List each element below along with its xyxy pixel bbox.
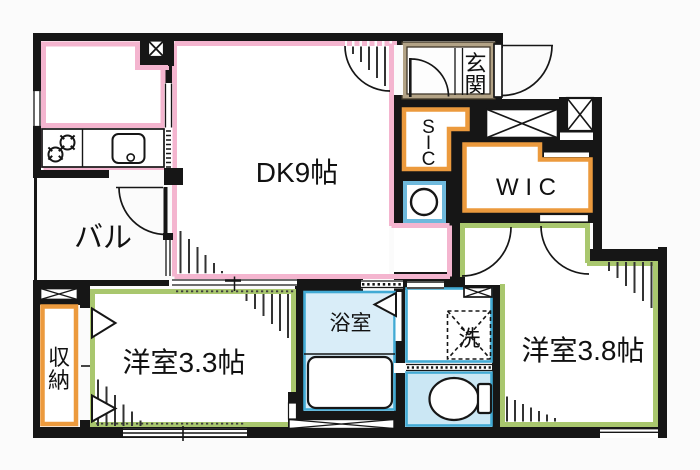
- svg-text:洋室3.8帖: 洋室3.8帖: [522, 335, 645, 366]
- svg-text:DK9帖: DK9帖: [256, 157, 338, 188]
- svg-text:バル: バル: [74, 222, 132, 254]
- svg-text:洗: 洗: [458, 326, 480, 351]
- svg-text:C: C: [422, 149, 436, 170]
- svg-text:浴室: 浴室: [330, 312, 372, 335]
- svg-text:納: 納: [48, 368, 70, 393]
- svg-text:収: 収: [48, 345, 70, 370]
- svg-text:関: 関: [464, 73, 486, 98]
- svg-text:W I C: W I C: [496, 174, 556, 201]
- svg-text:洋室3.3帖: 洋室3.3帖: [123, 347, 246, 378]
